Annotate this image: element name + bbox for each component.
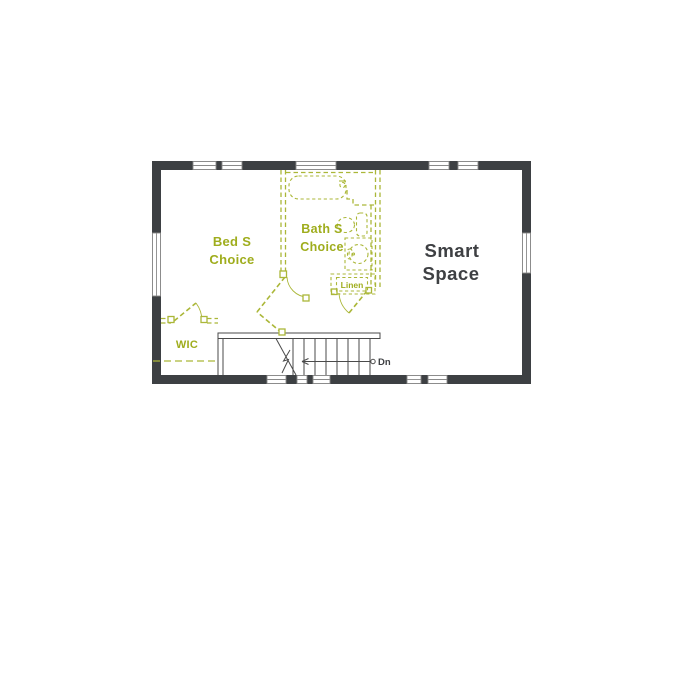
room-labels: Bed S Choice Bath S Choice Smart Space W… [176, 222, 480, 351]
smart-space-line2: Space [422, 263, 479, 284]
smart-space-line1: Smart [425, 240, 480, 261]
bed-choice-line2: Choice [209, 252, 254, 267]
window-top-2 [222, 162, 242, 170]
window-right [523, 233, 531, 273]
window-bottom-1 [267, 376, 286, 384]
room-label-bed-choice: Bed S Choice [209, 234, 254, 267]
bath-choice-line2: Choice [300, 240, 343, 254]
staircase [218, 333, 380, 375]
window-top-5 [458, 162, 478, 170]
window-left [153, 233, 161, 296]
room-label-bath-choice: Bath S Choice [300, 222, 343, 254]
bath-choice-line1: Bath S [301, 222, 342, 236]
option-walls [153, 170, 380, 361]
stair-treads [293, 339, 370, 376]
window-bottom-5 [428, 376, 447, 384]
window-bottom-3 [313, 376, 330, 384]
window-top-4 [429, 162, 449, 170]
stairs-down-label: Dn [378, 357, 391, 368]
window-top-1 [193, 162, 216, 170]
stair-down-arrow [302, 359, 375, 365]
linen-label: Linen [341, 280, 364, 290]
window-bottom-4 [407, 376, 421, 384]
wic-door [174, 303, 202, 321]
bedroom-bath-doors [257, 277, 307, 333]
floorplan: Dn [0, 0, 683, 683]
window-top-3 [296, 162, 336, 170]
room-label-smart-space: Smart Space [422, 240, 479, 284]
bed-choice-line1: Bed S [213, 234, 251, 249]
sink-vanity-fixture [345, 238, 372, 270]
window-bottom-2 [297, 376, 307, 384]
stair-railing [218, 333, 380, 339]
bathtub-fixture [289, 176, 346, 199]
floorplan-page: Dn [0, 0, 683, 683]
wic-label: WIC [176, 339, 198, 351]
